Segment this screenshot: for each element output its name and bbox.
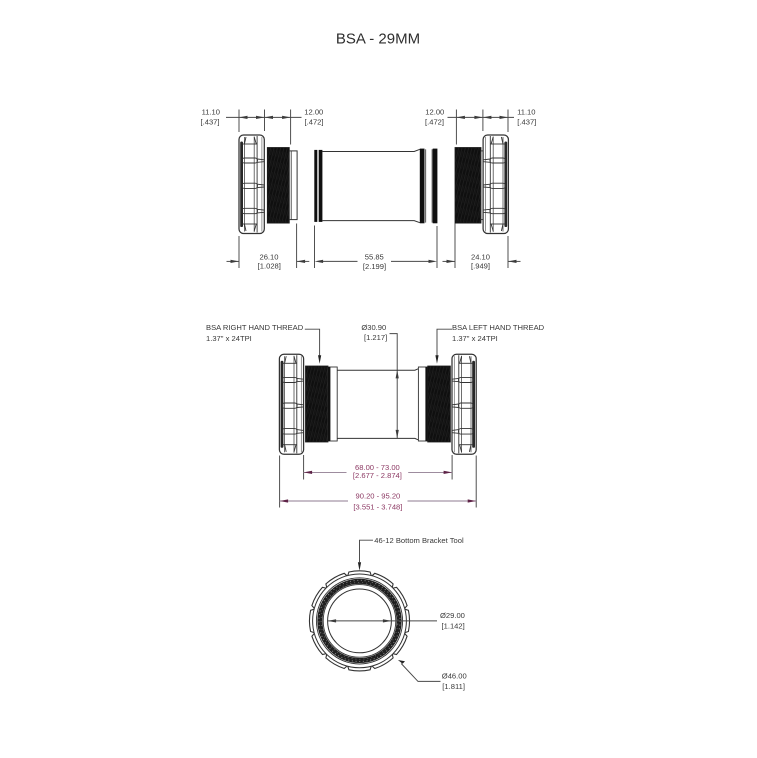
svg-text:26.10: 26.10 [259,253,278,262]
svg-text:[1.028]: [1.028] [258,262,281,271]
svg-text:[2.677 - 2.874]: [2.677 - 2.874] [353,471,402,480]
svg-text:[.437]: [.437] [201,117,220,126]
svg-text:[1.142]: [1.142] [442,622,465,631]
svg-text:[1.217]: [1.217] [364,333,387,342]
svg-text:[.949]: [.949] [471,262,490,271]
svg-text:[1.811]: [1.811] [442,682,465,691]
svg-text:90.20 - 95.20: 90.20 - 95.20 [356,492,401,501]
svg-text:46-12 Bottom Bracket Tool: 46-12 Bottom Bracket Tool [374,536,464,545]
svg-text:11.10: 11.10 [202,108,220,117]
svg-text:Ø29.00: Ø29.00 [440,611,465,620]
svg-text:[.437]: [.437] [517,117,536,126]
svg-text:Ø46.00: Ø46.00 [442,671,467,680]
svg-text:[3.551 - 3.748]: [3.551 - 3.748] [353,503,402,512]
svg-text:55.85: 55.85 [365,253,384,262]
svg-text:BSA RIGHT HAND THREAD: BSA RIGHT HAND THREAD [206,323,304,332]
svg-text:BSA - 29MM: BSA - 29MM [336,31,420,48]
svg-text:11.10: 11.10 [517,108,535,117]
svg-text:12.00: 12.00 [425,108,444,117]
svg-text:BSA LEFT HAND THREAD: BSA LEFT HAND THREAD [452,323,545,332]
svg-text:1.37" x 24TPI: 1.37" x 24TPI [452,334,498,343]
svg-text:24.10: 24.10 [471,253,490,262]
svg-text:1.37" x 24TPI: 1.37" x 24TPI [206,334,252,343]
svg-text:[.472]: [.472] [305,117,324,126]
svg-text:[.472]: [.472] [425,117,444,126]
svg-text:[2.199]: [2.199] [363,262,386,271]
svg-text:Ø30.90: Ø30.90 [361,323,386,332]
svg-text:12.00: 12.00 [304,108,323,117]
